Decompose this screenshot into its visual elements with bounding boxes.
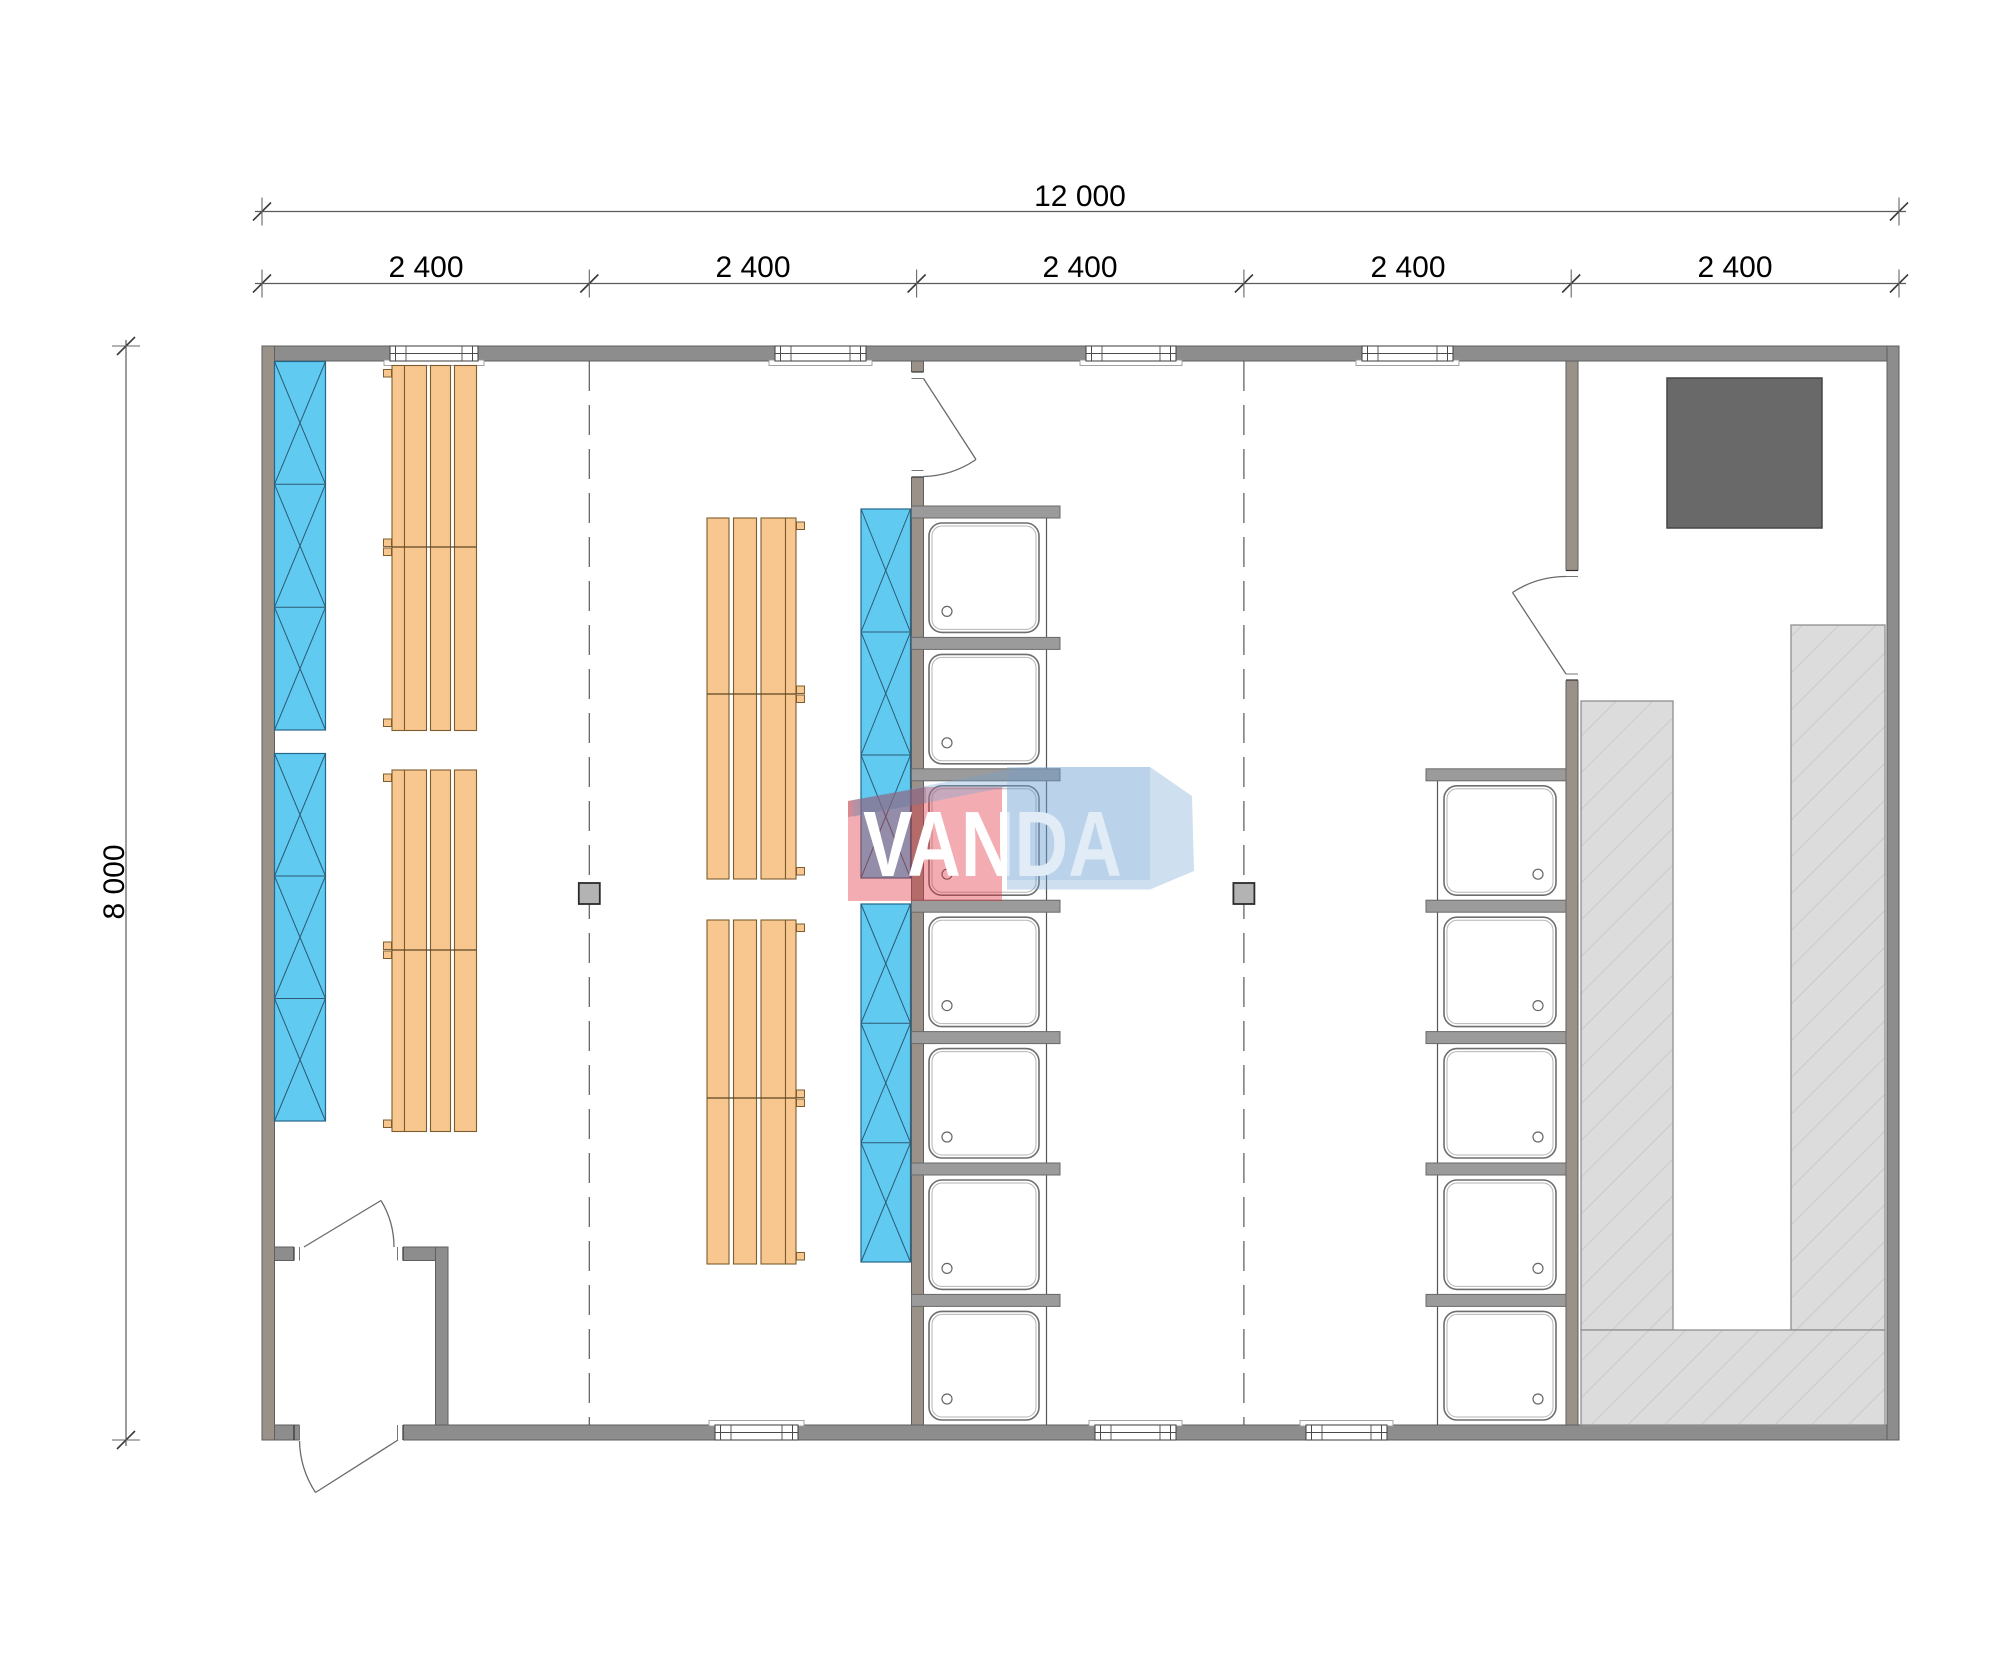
svg-text:12 000: 12 000 [1034,180,1126,213]
svg-text:2 400: 2 400 [1042,251,1117,284]
svg-text:8 000: 8 000 [98,844,131,919]
svg-text:2 400: 2 400 [1370,251,1445,284]
svg-text:2 400: 2 400 [388,251,463,284]
svg-text:2 400: 2 400 [715,251,790,284]
svg-text:2 400: 2 400 [1697,251,1772,284]
